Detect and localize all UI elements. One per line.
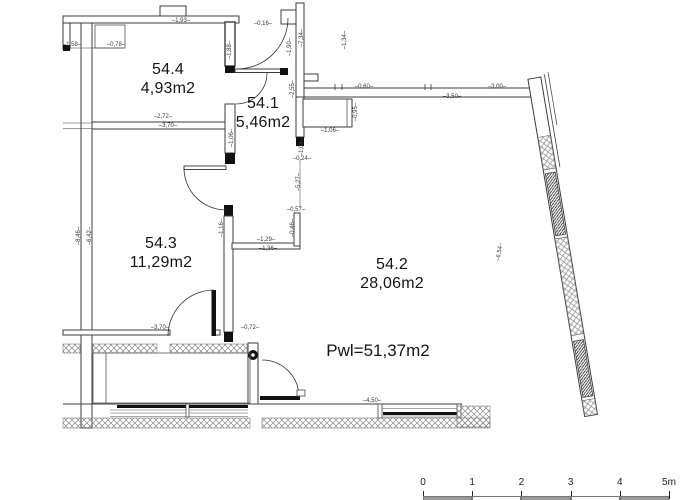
- scale-tick: [669, 491, 670, 499]
- dimension-label: –1,16–: [219, 219, 225, 237]
- room-number: 54.3: [130, 234, 192, 253]
- scale-segment: [423, 496, 472, 500]
- dimension-label: –6,42–: [87, 227, 93, 245]
- dimension-label: –2,72–: [154, 114, 172, 120]
- door-arc: [168, 290, 214, 336]
- floorplan-canvas: 54.44,93m254.15,46m254.311,29m254.228,06…: [0, 0, 700, 500]
- dimension-label: –0,72–: [241, 325, 259, 331]
- total-area-label: Pwl=51,37m2: [326, 341, 429, 361]
- dimension-label: –3,00–: [488, 84, 506, 90]
- balcony: [93, 353, 250, 403]
- scale-number: 1: [469, 478, 475, 488]
- scale-number: 0: [420, 478, 426, 488]
- door-arc: [262, 360, 299, 397]
- room-number: 54.4: [141, 60, 196, 79]
- scale-segment: [521, 496, 570, 500]
- door-leaf: [184, 166, 226, 170]
- dimension-label: –1,04–: [299, 138, 305, 156]
- room-number: 54.2: [360, 255, 424, 274]
- dimension-label: –1,58–: [63, 42, 81, 48]
- room-area: 28,06m2: [360, 274, 424, 293]
- dimension-label: –1,90–: [287, 38, 293, 56]
- dimension-label: –1,93–: [172, 18, 190, 24]
- scale-segment: [620, 496, 669, 500]
- dimension-label: –8,46–: [76, 227, 82, 245]
- slanted-wall: [527, 72, 605, 417]
- window: [383, 412, 457, 415]
- dimension-label: –3,70–: [151, 325, 169, 331]
- room-label-54-1: 54.15,46m2: [236, 94, 291, 132]
- scale-number: 4: [617, 478, 623, 488]
- scale-number: 3: [568, 478, 574, 488]
- dimension-label: –1,88–: [227, 41, 233, 59]
- dimension-label: –0,78–: [107, 42, 125, 48]
- room-area: 4,93m2: [141, 79, 196, 98]
- dimension-label: –1,06–: [321, 128, 339, 134]
- dimension-label: –0,60–: [355, 84, 373, 90]
- dimension-label: –0,24–: [293, 156, 311, 162]
- dimension-label: –4,50–: [363, 398, 381, 404]
- dimension-label: –2,55–: [290, 80, 296, 98]
- scale-segment: [472, 496, 521, 500]
- window: [545, 172, 565, 236]
- dimension-label: –0,16–: [254, 21, 272, 27]
- door-arc: [184, 168, 226, 210]
- room-label-54-3: 54.311,29m2: [130, 234, 192, 272]
- dimension-label: –1,34–: [342, 31, 348, 49]
- dimension-label: –1,36–: [259, 246, 277, 252]
- dimension-label: –0,46–: [290, 219, 296, 237]
- scale-number: 2: [519, 478, 525, 488]
- scale-number: 5m: [662, 478, 676, 488]
- window: [117, 405, 186, 408]
- door-leaf: [260, 396, 300, 400]
- dimension-label: –3,50–: [443, 94, 461, 100]
- room-area: 11,29m2: [130, 253, 192, 272]
- dimension-label: –3,70–: [159, 123, 177, 129]
- dimension-label: –1,29–: [257, 237, 275, 243]
- dimension-label: –1,06–: [229, 129, 235, 147]
- room-number: 54.1: [236, 94, 291, 113]
- room-label-54-2: 54.228,06m2: [360, 255, 424, 293]
- scale-segment: [571, 496, 620, 500]
- dimension-label: –0,57–: [287, 207, 305, 213]
- door-leaf: [212, 290, 217, 336]
- floorplan-drawing: [0, 0, 700, 500]
- dimension-label: –7,34–: [299, 29, 305, 47]
- dimension-label: –5,27–: [296, 173, 302, 191]
- room-label-54-4: 54.44,93m2: [141, 60, 196, 98]
- dimension-label: –0,95–: [353, 103, 359, 121]
- bottom-walls: [63, 353, 462, 418]
- window: [189, 405, 248, 408]
- room-area: 5,46m2: [236, 113, 291, 132]
